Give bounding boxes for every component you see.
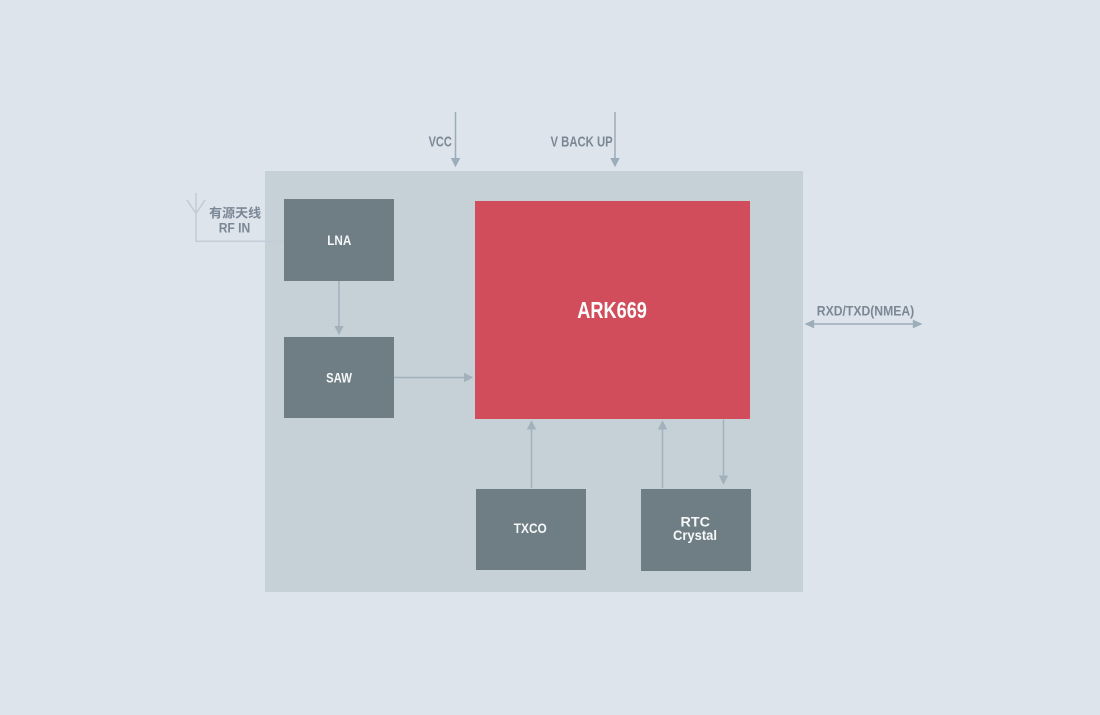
svg-text:V BACK UP: V BACK UP (551, 134, 613, 151)
svg-text:RXD/TXD(NMEA): RXD/TXD(NMEA) (817, 303, 914, 319)
svg-text:RF IN: RF IN (219, 221, 251, 236)
svg-text:TXCO: TXCO (514, 520, 547, 536)
svg-text:LNA: LNA (327, 232, 351, 248)
svg-text:ARK669: ARK669 (577, 297, 647, 323)
svg-text:VCC: VCC (429, 134, 452, 151)
svg-text:Crystal: Crystal (673, 527, 717, 543)
svg-text:SAW: SAW (326, 370, 352, 386)
